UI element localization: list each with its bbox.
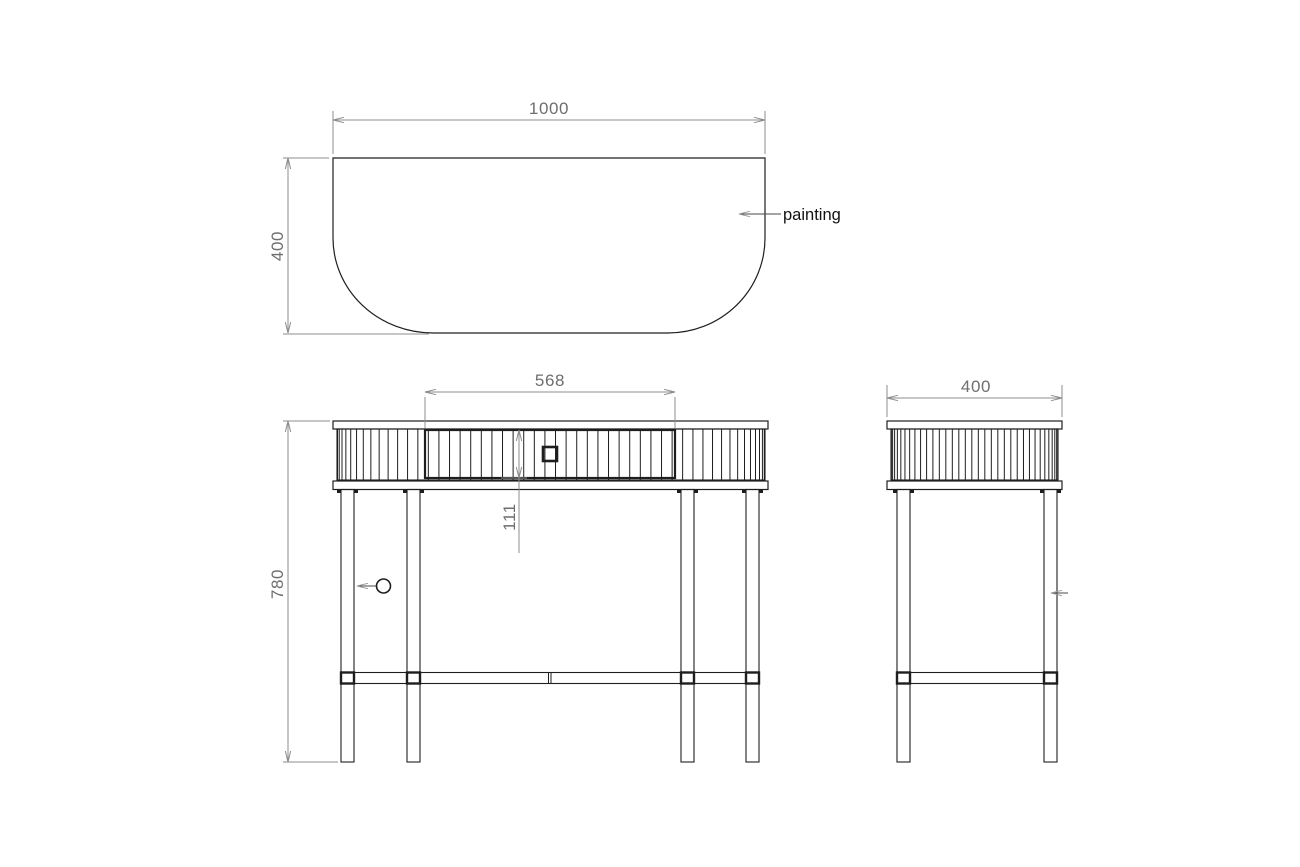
dim-overall-height-label: 780	[268, 569, 287, 599]
leg-joint-mark	[354, 490, 358, 494]
leg-joint-mark	[1040, 490, 1044, 494]
stretcher-joint-block	[1044, 673, 1057, 684]
front-leg	[746, 490, 759, 763]
dim-side-depth-label: 400	[961, 377, 991, 396]
leg-joint-mark	[420, 490, 424, 494]
leg-joint-mark	[910, 490, 914, 494]
stretcher-joint-block	[897, 673, 910, 684]
side-view: 400	[887, 377, 1068, 762]
leg-joint-mark	[893, 490, 897, 494]
front-leg	[341, 490, 354, 763]
tabletop-outline	[333, 158, 765, 333]
side-leg	[897, 490, 910, 763]
side-tabletop-edge	[887, 421, 1062, 429]
leg-callout-balloon	[377, 579, 391, 593]
front-view: 568 111 780	[268, 371, 768, 762]
leg-joint-mark	[677, 490, 681, 494]
side-view-geometry	[887, 385, 1068, 762]
dim-drawer-width-label: 568	[535, 371, 565, 390]
drawing-canvas: 1000 400 painting 568 111 780 400	[0, 0, 1300, 867]
leg-joint-mark	[742, 490, 746, 494]
leg-joint-mark	[1057, 490, 1061, 494]
front-leg	[681, 490, 694, 763]
dim-drawer-height-label: 111	[500, 503, 519, 531]
leg-joint-mark	[694, 490, 698, 494]
front-leg	[407, 490, 420, 763]
painting-callout-label: painting	[783, 206, 841, 224]
side-bottom-rail	[887, 481, 1062, 490]
dim-top-width-label: 1000	[529, 99, 569, 118]
stretcher-joint-block	[341, 673, 354, 684]
leg-joint-mark	[337, 490, 341, 494]
side-leg	[1044, 490, 1057, 763]
top-view-geometry	[283, 111, 781, 334]
front-stretcher	[341, 673, 759, 684]
stretcher-joint-block	[681, 673, 694, 684]
stretcher-joint-block	[746, 673, 759, 684]
side-apron	[891, 429, 1058, 480]
front-apron	[337, 429, 765, 480]
technical-drawing: 1000 400 painting 568 111 780 400	[0, 0, 1300, 867]
side-stretcher	[897, 673, 1057, 684]
front-bottom-rail	[333, 481, 768, 490]
leg-joint-mark	[403, 490, 407, 494]
top-view: 1000 400 painting	[268, 99, 841, 334]
front-tabletop-edge	[333, 421, 768, 429]
leg-joint-mark	[759, 490, 763, 494]
stretcher-joint-block	[407, 673, 420, 684]
front-view-geometry	[283, 389, 768, 762]
dim-top-depth-label: 400	[268, 231, 287, 261]
drawer-front	[425, 430, 675, 478]
